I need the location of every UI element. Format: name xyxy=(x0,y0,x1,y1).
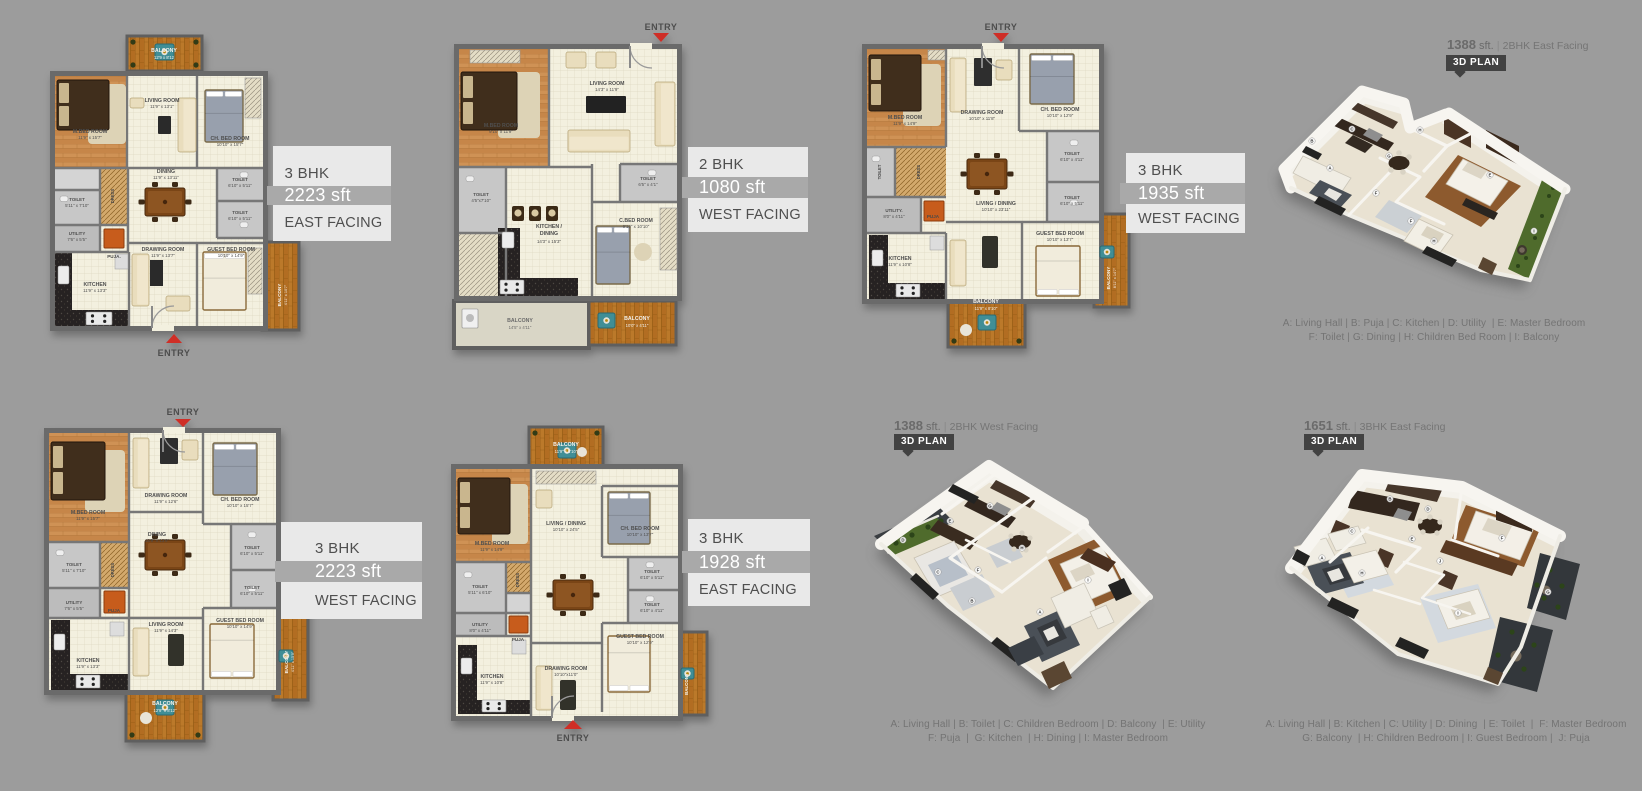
svg-text:I: I xyxy=(1533,229,1534,234)
svg-text:11'9" x 13'11": 11'9" x 13'11" xyxy=(153,175,179,180)
svg-text:DRESS: DRESS xyxy=(916,165,921,180)
svg-text:KITCHEN: KITCHEN xyxy=(480,674,503,680)
svg-text:5'11" x 6'10": 5'11" x 6'10" xyxy=(468,590,492,595)
svg-text:10'0" x 4'11": 10'0" x 4'11" xyxy=(626,323,649,328)
svg-text:7'6" x 5'5": 7'6" x 5'5" xyxy=(64,606,84,611)
svg-text:KITCHEN: KITCHEN xyxy=(83,282,106,288)
svg-text:ENTRY: ENTRY xyxy=(557,733,590,743)
svg-text:11'9" x 10'8": 11'9" x 10'8" xyxy=(888,262,912,267)
svg-text:CH. BED ROOM: CH. BED ROOM xyxy=(1041,107,1080,113)
svg-text:11'9" x 8'10": 11'9" x 8'10" xyxy=(975,306,998,311)
svg-text:H: H xyxy=(1418,128,1421,133)
svg-text:11'9" x 13'3": 11'9" x 13'3" xyxy=(83,288,107,293)
svg-text:11'9" x 14'9": 11'9" x 14'9" xyxy=(893,121,917,126)
svg-text:CH. BED ROOM: CH. BED ROOM xyxy=(621,526,660,532)
svg-text:LIVING ROOM: LIVING ROOM xyxy=(145,98,180,104)
svg-text:11'9" x 15'7": 11'9" x 15'7" xyxy=(76,516,100,521)
svg-text:PUJA: PUJA xyxy=(927,214,940,219)
svg-text:UTILITY: UTILITY xyxy=(69,231,86,236)
svg-text:5'11" x 7'10": 5'11" x 7'10" xyxy=(65,203,89,208)
svg-text:PUJA.: PUJA. xyxy=(107,254,121,259)
svg-text:DRAWING ROOM: DRAWING ROOM xyxy=(145,493,188,499)
svg-text:D: D xyxy=(1426,507,1429,512)
svg-text:I: I xyxy=(1457,611,1458,616)
svg-text:6'10" x 5'11": 6'10" x 5'11" xyxy=(1060,201,1084,206)
svg-text:8'0" x 4'11": 8'0" x 4'11" xyxy=(883,214,905,219)
svg-text:6'5" x 4'1": 6'5" x 4'1" xyxy=(638,182,658,187)
svg-text:TOILET: TOILET xyxy=(877,164,882,179)
svg-text:E: E xyxy=(949,519,952,524)
svg-text:TOILET: TOILET xyxy=(232,210,248,215)
svg-text:DRESS: DRESS xyxy=(110,563,115,578)
svg-text:F: F xyxy=(1375,191,1378,196)
svg-text:BALCONY: BALCONY xyxy=(152,701,178,707)
svg-text:BALCONY: BALCONY xyxy=(151,48,177,54)
svg-text:H: H xyxy=(1432,239,1435,244)
svg-text:6'10" x 4'11": 6'10" x 4'11" xyxy=(1060,157,1084,162)
svg-text:TOILET: TOILET xyxy=(644,602,660,607)
svg-text:G: G xyxy=(988,504,992,509)
svg-text:F: F xyxy=(1410,219,1413,224)
svg-text:DRAWING ROOM: DRAWING ROOM xyxy=(142,247,185,253)
svg-text:DINING: DINING xyxy=(540,231,558,237)
svg-text:D: D xyxy=(901,538,904,543)
svg-text:DRAWING ROOM: DRAWING ROOM xyxy=(961,110,1004,116)
svg-text:I: I xyxy=(1087,578,1088,583)
svg-text:DINING: DINING xyxy=(148,532,166,538)
svg-text:DRAWING ROOM: DRAWING ROOM xyxy=(545,666,588,672)
svg-text:TOILET: TOILET xyxy=(472,584,488,589)
svg-text:10'10" x 13'7": 10'10" x 13'7" xyxy=(627,532,654,537)
svg-text:10'10" x 13'7": 10'10" x 13'7" xyxy=(1047,237,1074,242)
svg-text:6'10" x 4'11": 6'10" x 4'11" xyxy=(640,608,664,613)
svg-text:12'9" x 8'12": 12'9" x 8'12" xyxy=(154,708,177,713)
svg-text:10'10" x 15'7": 10'10" x 15'7" xyxy=(227,503,254,508)
svg-text:14'3" x 11'9": 14'3" x 11'9" xyxy=(595,87,619,92)
svg-text:PUJA: PUJA xyxy=(512,637,525,642)
svg-text:TOILET: TOILET xyxy=(644,569,660,574)
svg-text:LIVING / DINING: LIVING / DINING xyxy=(546,521,586,527)
svg-text:9'10" x 11'9": 9'10" x 11'9" xyxy=(489,129,513,134)
svg-text:BALCONY: BALCONY xyxy=(284,651,289,674)
svg-text:H: H xyxy=(1020,546,1023,551)
svg-text:TOILET: TOILET xyxy=(473,192,489,197)
svg-text:TOILET: TOILET xyxy=(244,545,260,550)
svg-text:GUEST BED ROOM: GUEST BED ROOM xyxy=(216,618,264,624)
svg-text:11'9" x 13'1": 11'9" x 13'1" xyxy=(150,104,174,109)
svg-text:6'10" x 5'11": 6'10" x 5'11" xyxy=(240,591,264,596)
svg-text:14'3" x 15'3": 14'3" x 15'3" xyxy=(537,239,562,244)
svg-text:10'10" x 14'9": 10'10" x 14'9" xyxy=(218,253,245,258)
svg-text:9'10" x 10'10": 9'10" x 10'10" xyxy=(623,224,650,229)
svg-text:10'10" x 24'5": 10'10" x 24'5" xyxy=(553,527,580,532)
svg-text:CH. BED ROOM: CH. BED ROOM xyxy=(211,136,250,142)
svg-text:TOILET: TOILET xyxy=(1064,195,1080,200)
svg-text:TOILET: TOILET xyxy=(640,176,656,181)
svg-text:LIVING ROOM: LIVING ROOM xyxy=(590,81,625,87)
svg-text:M.BED ROOM: M.BED ROOM xyxy=(888,115,922,121)
svg-text:7'6" x 5'5": 7'6" x 5'5" xyxy=(67,237,87,242)
svg-text:11'9" x 14'9": 11'9" x 14'9" xyxy=(480,547,504,552)
svg-text:B: B xyxy=(970,599,973,604)
svg-text:TOILET: TOILET xyxy=(1064,151,1080,156)
svg-text:11'9" x 13'7": 11'9" x 13'7" xyxy=(151,253,175,258)
svg-text:B: B xyxy=(1310,139,1313,144)
svg-text:BALCONY: BALCONY xyxy=(684,673,689,695)
svg-text:DRESS: DRESS xyxy=(110,189,115,204)
svg-text:H: H xyxy=(1360,571,1363,576)
svg-text:4'11" x 10'7": 4'11" x 10'7" xyxy=(284,284,288,305)
svg-text:F: F xyxy=(977,568,980,573)
svg-text:BALCONY: BALCONY xyxy=(624,316,650,322)
svg-text:KITCHEN: KITCHEN xyxy=(888,256,911,262)
svg-text:DINING: DINING xyxy=(157,169,175,175)
svg-text:GUEST BED ROOM: GUEST BED ROOM xyxy=(616,634,664,640)
svg-text:G: G xyxy=(1387,154,1391,159)
svg-text:BALCONY: BALCONY xyxy=(277,284,282,307)
svg-text:LIVING / DINING: LIVING / DINING xyxy=(976,201,1016,207)
svg-text:11'9" x 8'10": 11'9" x 8'10" xyxy=(555,449,578,454)
svg-text:B: B xyxy=(1388,497,1391,502)
svg-text:ENTRY: ENTRY xyxy=(167,407,200,417)
svg-text:TOILET: TOILET xyxy=(232,177,248,182)
svg-text:TOILET: TOILET xyxy=(244,585,260,590)
svg-text:ENTRY: ENTRY xyxy=(645,22,678,32)
svg-text:LIVING ROOM: LIVING ROOM xyxy=(149,622,184,628)
svg-text:GUEST BED ROOM: GUEST BED ROOM xyxy=(207,247,255,253)
svg-text:E: E xyxy=(1411,537,1414,542)
svg-text:F: F xyxy=(1501,536,1504,541)
svg-text:DRESS: DRESS xyxy=(515,573,520,588)
svg-text:10'10" x 15'7": 10'10" x 15'7" xyxy=(217,142,244,147)
svg-text:E: E xyxy=(1489,173,1492,178)
svg-text:BALCONY: BALCONY xyxy=(1106,267,1111,290)
svg-text:CH. BED ROOM: CH. BED ROOM xyxy=(221,497,260,503)
svg-text:10'10" x 12'9": 10'10" x 12'9" xyxy=(627,640,654,645)
svg-text:ENTRY: ENTRY xyxy=(985,22,1018,32)
svg-text:11'9" x 13'3": 11'9" x 13'3" xyxy=(76,664,100,669)
svg-text:11'9" x 12'6": 11'9" x 12'6" xyxy=(154,499,178,504)
svg-text:TOILET: TOILET xyxy=(69,197,85,202)
svg-text:4'11" x 15'9": 4'11" x 15'9" xyxy=(291,651,295,672)
svg-text:8'11" x 14'7": 8'11" x 14'7" xyxy=(1113,267,1117,288)
svg-text:M.BED ROOM: M.BED ROOM xyxy=(71,510,105,516)
svg-text:11'9" x 10'8": 11'9" x 10'8" xyxy=(480,680,504,685)
svg-text:BALCONY: BALCONY xyxy=(507,318,533,324)
svg-text:4'5"x7'10": 4'5"x7'10" xyxy=(471,198,491,203)
svg-text:6'10" x 5'11": 6'10" x 5'11" xyxy=(228,216,252,221)
svg-text:6'10" x 5'11": 6'10" x 5'11" xyxy=(640,575,664,580)
svg-text:BALCONY: BALCONY xyxy=(973,299,999,305)
svg-text:10'10" x 23'11": 10'10" x 23'11" xyxy=(982,207,1011,212)
svg-text:UTILITY: UTILITY xyxy=(472,622,488,627)
svg-text:ENTRY: ENTRY xyxy=(158,348,191,358)
svg-text:C.BED ROOM: C.BED ROOM xyxy=(619,218,653,224)
svg-text:6'10" x 5'11": 6'10" x 5'11" xyxy=(240,551,264,556)
svg-text:UTILITY: UTILITY xyxy=(66,600,83,605)
svg-text:11'9" x 14'3": 11'9" x 14'3" xyxy=(154,628,178,633)
svg-text:KITCHEN: KITCHEN xyxy=(76,658,99,664)
svg-text:5'11" x 7'10": 5'11" x 7'10" xyxy=(62,568,86,573)
svg-text:G: G xyxy=(1546,590,1550,595)
svg-text:12'9 x 8'12: 12'9 x 8'12 xyxy=(154,55,175,60)
svg-text:10'10" x 11'8": 10'10" x 11'8" xyxy=(969,116,996,121)
svg-text:6'10" x 5'11": 6'10" x 5'11" xyxy=(228,183,252,188)
svg-text:TOILET: TOILET xyxy=(66,562,82,567)
svg-text:14'5" x 4'11": 14'5" x 4'11" xyxy=(509,325,532,330)
svg-text:KITCHEN /: KITCHEN / xyxy=(536,224,562,230)
svg-text:PUJA: PUJA xyxy=(108,608,121,613)
svg-text:10'10" x 12'9": 10'10" x 12'9" xyxy=(1047,113,1074,118)
svg-text:11'9" x 15'7": 11'9" x 15'7" xyxy=(78,135,102,140)
svg-text:10'10"x11'0": 10'10"x11'0" xyxy=(554,672,578,677)
svg-text:15'9" x 13'9": 15'9" x 13'9" xyxy=(145,538,170,543)
svg-text:M.BED ROOM: M.BED ROOM xyxy=(475,541,509,547)
svg-text:GUEST BED ROOM: GUEST BED ROOM xyxy=(1036,231,1084,237)
svg-text:M.BED ROOM: M.BED ROOM xyxy=(73,129,107,135)
svg-text:UTILITY.: UTILITY. xyxy=(885,208,902,213)
svg-text:BALCONY: BALCONY xyxy=(553,442,579,448)
svg-text:8'0" x 4'11": 8'0" x 4'11" xyxy=(469,628,491,633)
svg-text:M.BED ROOM: M.BED ROOM xyxy=(484,123,518,129)
svg-text:10'10" x 14'9": 10'10" x 14'9" xyxy=(227,624,254,629)
